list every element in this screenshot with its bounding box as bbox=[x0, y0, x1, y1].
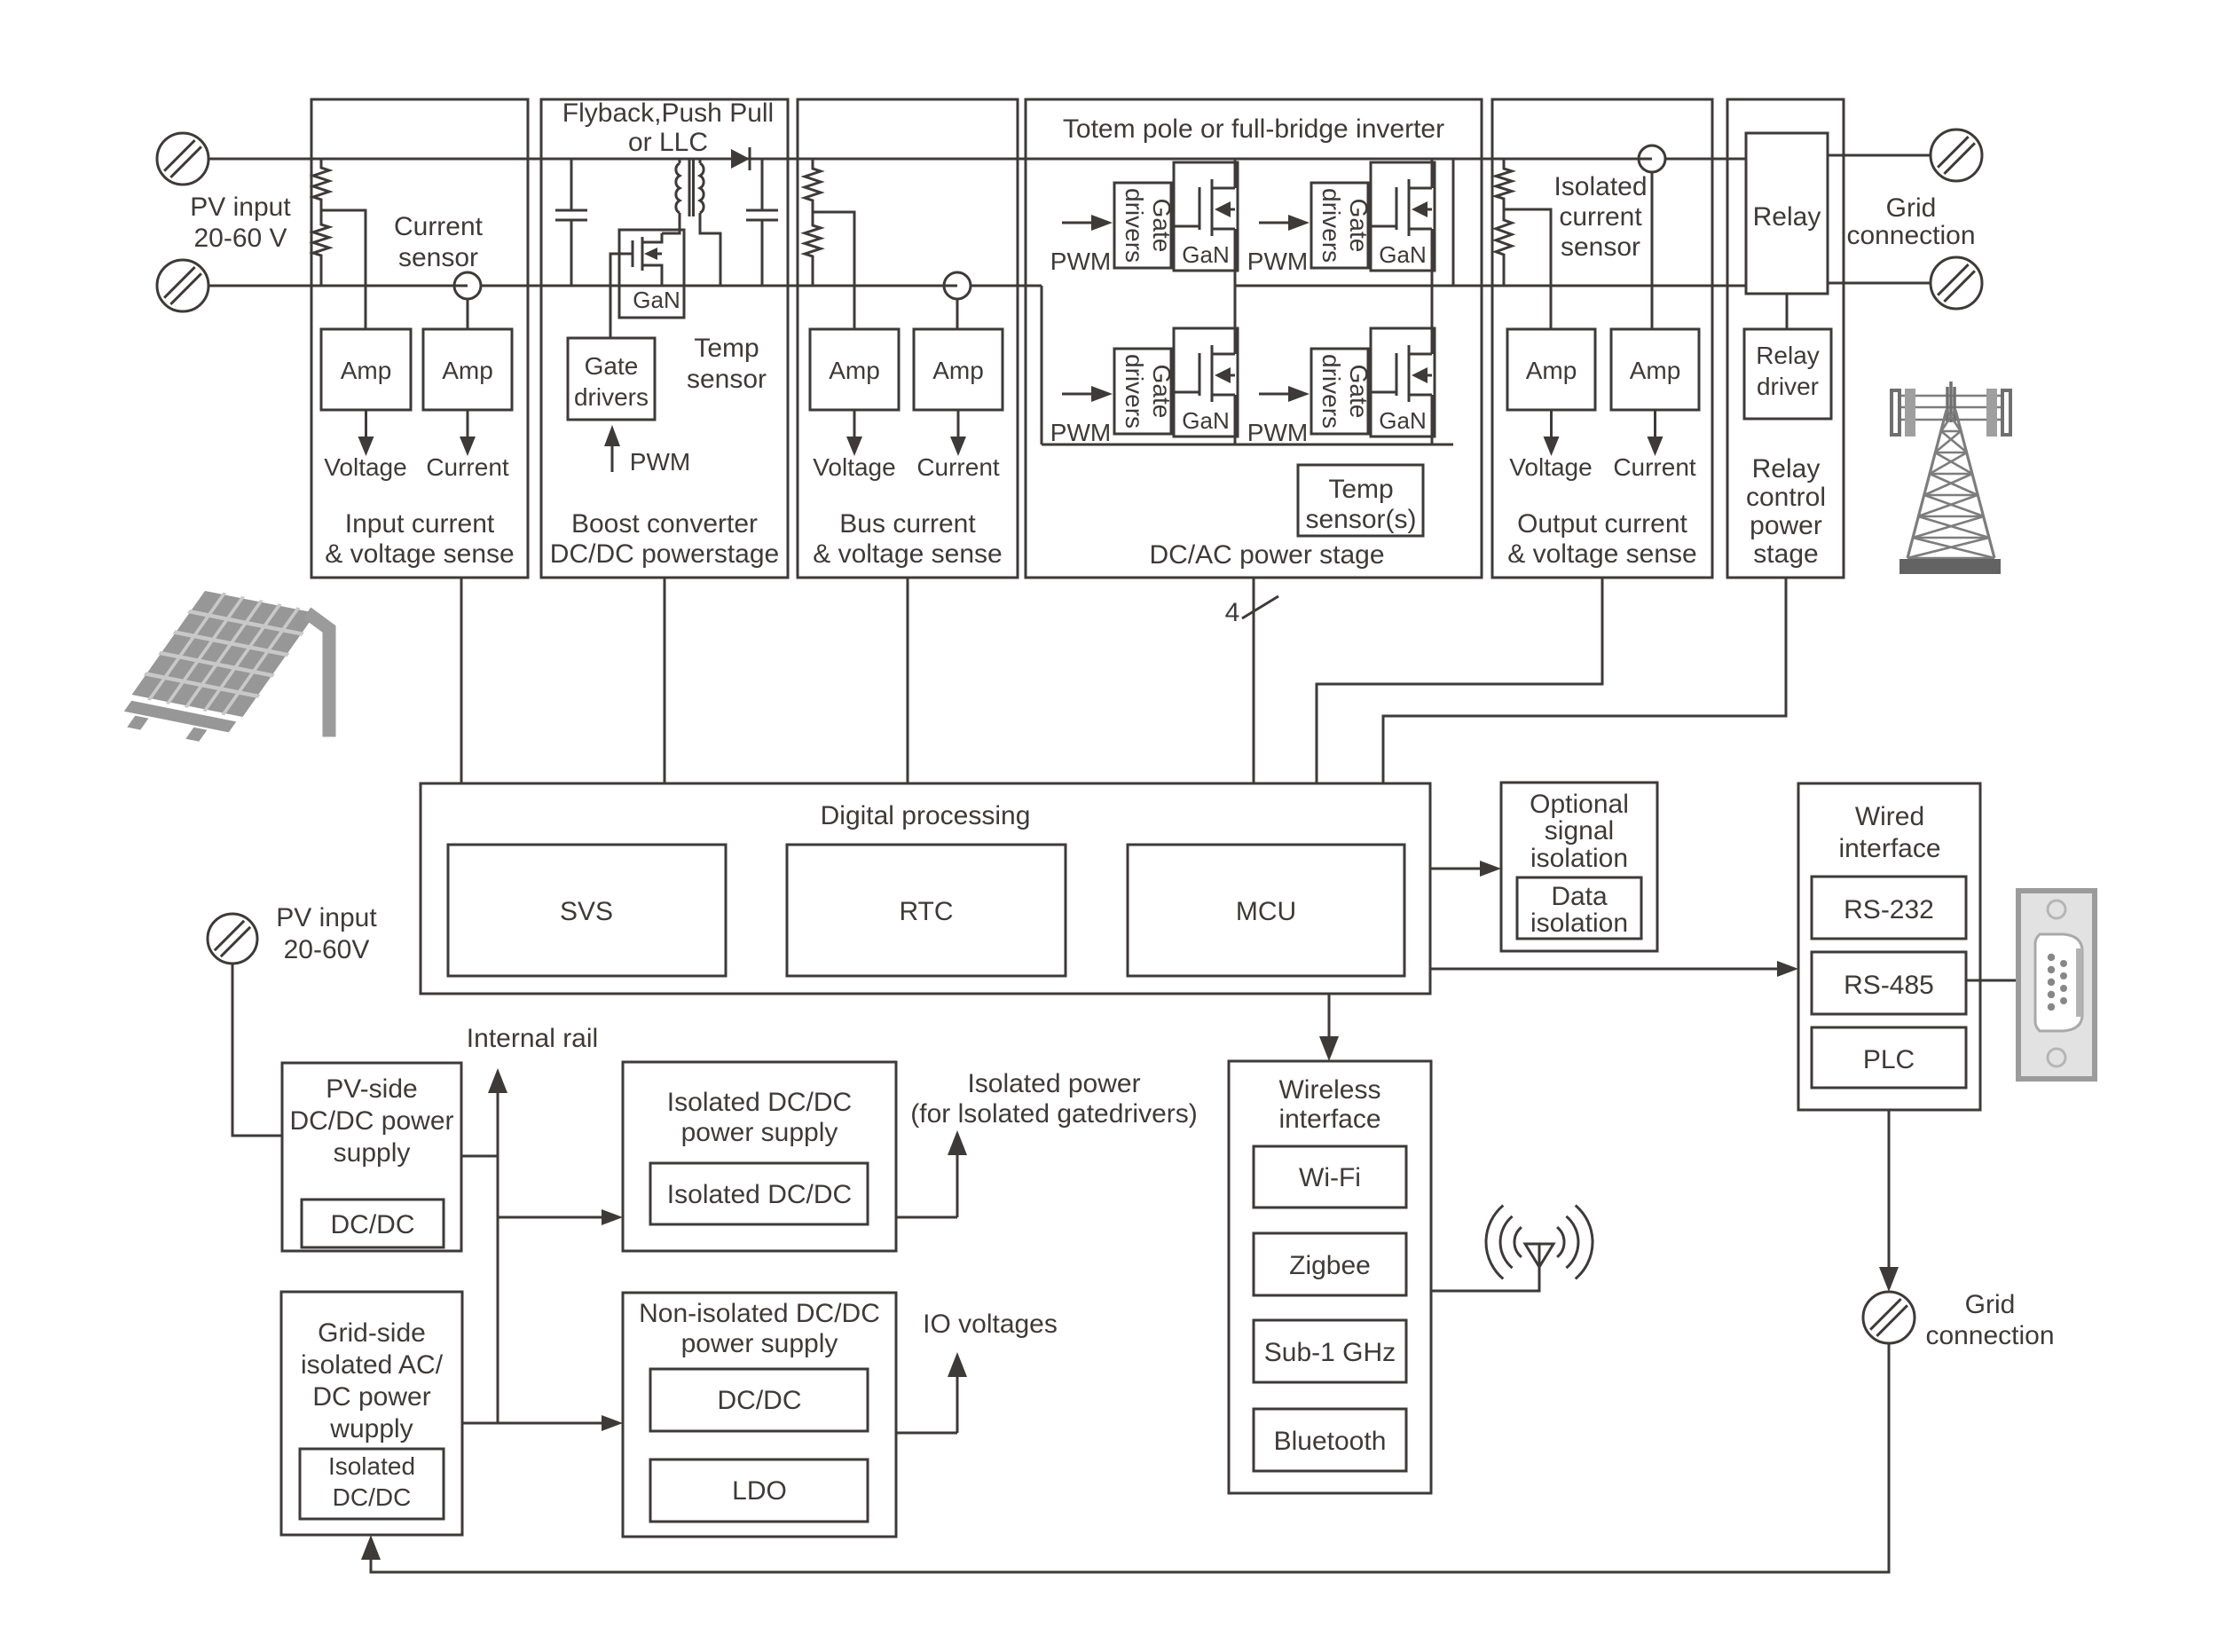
svg-text:SVS: SVS bbox=[560, 897, 613, 926]
svg-text:Output current: Output current bbox=[1517, 509, 1687, 539]
svg-text:PWM: PWM bbox=[630, 448, 690, 476]
svg-text:signal: signal bbox=[1545, 816, 1614, 846]
svg-text:DC/DC powerstage: DC/DC powerstage bbox=[550, 539, 779, 569]
svg-text:DC power: DC power bbox=[312, 1382, 430, 1412]
svg-text:(for lsolated gatedrivers): (for lsolated gatedrivers) bbox=[910, 1099, 1197, 1129]
svg-text:Voltage: Voltage bbox=[1509, 453, 1592, 481]
svg-text:Wired: Wired bbox=[1855, 802, 1924, 831]
svg-text:PWM: PWM bbox=[1050, 248, 1111, 275]
svg-text:Grid: Grid bbox=[1965, 1290, 2016, 1319]
svg-text:Amp: Amp bbox=[829, 357, 880, 384]
svg-text:Voltage: Voltage bbox=[813, 453, 895, 481]
svg-text:Internal rail: Internal rail bbox=[467, 1024, 598, 1053]
svg-text:Current: Current bbox=[394, 212, 484, 241]
svg-text:& voltage sense: & voltage sense bbox=[1507, 539, 1696, 569]
svg-text:Sub-1 GHz: Sub-1 GHz bbox=[1264, 1338, 1396, 1367]
svg-text:driver: driver bbox=[1757, 373, 1819, 400]
svg-text:Current: Current bbox=[916, 453, 1000, 481]
svg-text:control: control bbox=[1746, 483, 1826, 512]
svg-text:Bluetooth: Bluetooth bbox=[1274, 1427, 1387, 1456]
svg-text:Flyback,Push Pull: Flyback,Push Pull bbox=[562, 98, 774, 128]
svg-text:DC/DC: DC/DC bbox=[718, 1386, 802, 1415]
svg-text:wupply: wupply bbox=[329, 1414, 413, 1444]
svg-text:Isolated: Isolated bbox=[328, 1452, 415, 1480]
svg-text:Grid-side: Grid-side bbox=[318, 1318, 426, 1348]
svg-text:sensor(s): sensor(s) bbox=[1305, 505, 1416, 534]
svg-text:Relay: Relay bbox=[1756, 342, 1820, 369]
svg-text:isolation: isolation bbox=[1530, 909, 1628, 938]
svg-text:isolated AC/: isolated AC/ bbox=[301, 1350, 444, 1380]
svg-text:sensor: sensor bbox=[687, 365, 767, 394]
svg-text:MCU: MCU bbox=[1236, 897, 1296, 926]
svg-text:GaN: GaN bbox=[1182, 407, 1229, 434]
svg-text:GaN: GaN bbox=[633, 287, 680, 313]
svg-text:RTC: RTC bbox=[899, 897, 953, 926]
svg-text:RS-232: RS-232 bbox=[1844, 895, 1934, 924]
svg-text:& voltage sense: & voltage sense bbox=[813, 539, 1002, 569]
svg-text:Gatedrivers: Gatedrivers bbox=[1121, 354, 1176, 429]
svg-text:interface: interface bbox=[1838, 834, 1940, 863]
svg-text:power: power bbox=[1750, 511, 1822, 540]
svg-text:RS-485: RS-485 bbox=[1844, 971, 1934, 1000]
svg-text:Digital processing: Digital processing bbox=[821, 801, 1031, 830]
svg-text:sensor: sensor bbox=[1561, 232, 1640, 262]
svg-text:power supply: power supply bbox=[681, 1118, 838, 1147]
svg-text:or LLC: or LLC bbox=[628, 128, 708, 157]
svg-text:connection: connection bbox=[1925, 1321, 2054, 1350]
svg-text:Current: Current bbox=[426, 453, 509, 481]
svg-text:Voltage: Voltage bbox=[324, 453, 406, 481]
svg-text:20-60V: 20-60V bbox=[284, 935, 370, 964]
svg-text:interface: interface bbox=[1278, 1105, 1380, 1134]
svg-text:current: current bbox=[1559, 202, 1642, 232]
svg-text:Amp: Amp bbox=[1630, 357, 1681, 384]
svg-text:Optional: Optional bbox=[1530, 790, 1629, 819]
svg-text:20-60 V: 20-60 V bbox=[193, 224, 287, 253]
svg-text:PLC: PLC bbox=[1863, 1045, 1915, 1074]
svg-text:Isolated DC/DC: Isolated DC/DC bbox=[667, 1180, 852, 1209]
svg-text:isolation: isolation bbox=[1530, 844, 1628, 873]
svg-text:Gatedrivers: Gatedrivers bbox=[1121, 188, 1176, 263]
svg-text:Isolated power: Isolated power bbox=[967, 1069, 1140, 1098]
svg-text:Amp: Amp bbox=[442, 357, 493, 384]
svg-text:Gatedrivers: Gatedrivers bbox=[1317, 354, 1372, 429]
svg-text:Gate: Gate bbox=[585, 352, 639, 380]
svg-text:PWM: PWM bbox=[1247, 419, 1308, 446]
svg-text:GaN: GaN bbox=[1379, 407, 1426, 434]
svg-text:GaN: GaN bbox=[1379, 241, 1426, 268]
svg-text:power supply: power supply bbox=[681, 1329, 838, 1358]
svg-text:Boost converter: Boost converter bbox=[571, 509, 758, 539]
svg-text:IO voltages: IO voltages bbox=[923, 1310, 1058, 1339]
svg-text:Relay: Relay bbox=[1752, 454, 1821, 484]
svg-text:Isolated: Isolated bbox=[1553, 172, 1647, 201]
svg-text:Amp: Amp bbox=[341, 357, 392, 384]
svg-text:Bus current: Bus current bbox=[839, 509, 976, 539]
svg-text:PWM: PWM bbox=[1050, 419, 1111, 446]
svg-text:PV input: PV input bbox=[276, 903, 377, 932]
svg-text:Amp: Amp bbox=[1526, 357, 1577, 384]
svg-text:drivers: drivers bbox=[574, 383, 649, 411]
svg-text:Wi-Fi: Wi-Fi bbox=[1299, 1163, 1361, 1192]
svg-text:Amp: Amp bbox=[932, 357, 984, 384]
svg-text:Relay: Relay bbox=[1753, 202, 1821, 232]
svg-text:DC/DC power: DC/DC power bbox=[289, 1106, 453, 1136]
svg-text:DC/DC: DC/DC bbox=[331, 1210, 415, 1239]
svg-text:Non-isolated DC/DC: Non-isolated DC/DC bbox=[639, 1299, 880, 1328]
svg-text:4: 4 bbox=[1225, 598, 1240, 627]
svg-text:sensor: sensor bbox=[398, 243, 478, 272]
svg-text:LDO: LDO bbox=[732, 1476, 787, 1506]
svg-text:GaN: GaN bbox=[1182, 241, 1229, 268]
svg-text:supply: supply bbox=[334, 1138, 411, 1168]
svg-text:DC/AC power stage: DC/AC power stage bbox=[1149, 540, 1384, 570]
svg-text:Grid: Grid bbox=[1886, 193, 1937, 223]
svg-text:connection: connection bbox=[1846, 221, 1975, 250]
svg-text:PV-side: PV-side bbox=[326, 1074, 417, 1104]
svg-text:& voltage sense: & voltage sense bbox=[325, 539, 514, 569]
svg-text:Totem pole or full-bridge inve: Totem pole or full-bridge inverter bbox=[1063, 114, 1444, 144]
svg-text:DC/DC: DC/DC bbox=[333, 1483, 412, 1511]
svg-text:PWM: PWM bbox=[1247, 248, 1308, 275]
svg-text:Input current: Input current bbox=[345, 509, 495, 539]
svg-text:Zigbee: Zigbee bbox=[1289, 1251, 1371, 1280]
svg-text:Data: Data bbox=[1551, 882, 1608, 911]
svg-text:Temp: Temp bbox=[1328, 475, 1393, 504]
svg-text:Temp: Temp bbox=[694, 334, 759, 363]
svg-text:Isolated DC/DC: Isolated DC/DC bbox=[667, 1088, 852, 1117]
svg-text:Gatedrivers: Gatedrivers bbox=[1317, 188, 1372, 263]
svg-text:Wireless: Wireless bbox=[1278, 1075, 1380, 1105]
svg-text:Current: Current bbox=[1613, 453, 1696, 481]
svg-text:PV input: PV input bbox=[190, 193, 291, 222]
svg-text:stage: stage bbox=[1753, 539, 1818, 569]
